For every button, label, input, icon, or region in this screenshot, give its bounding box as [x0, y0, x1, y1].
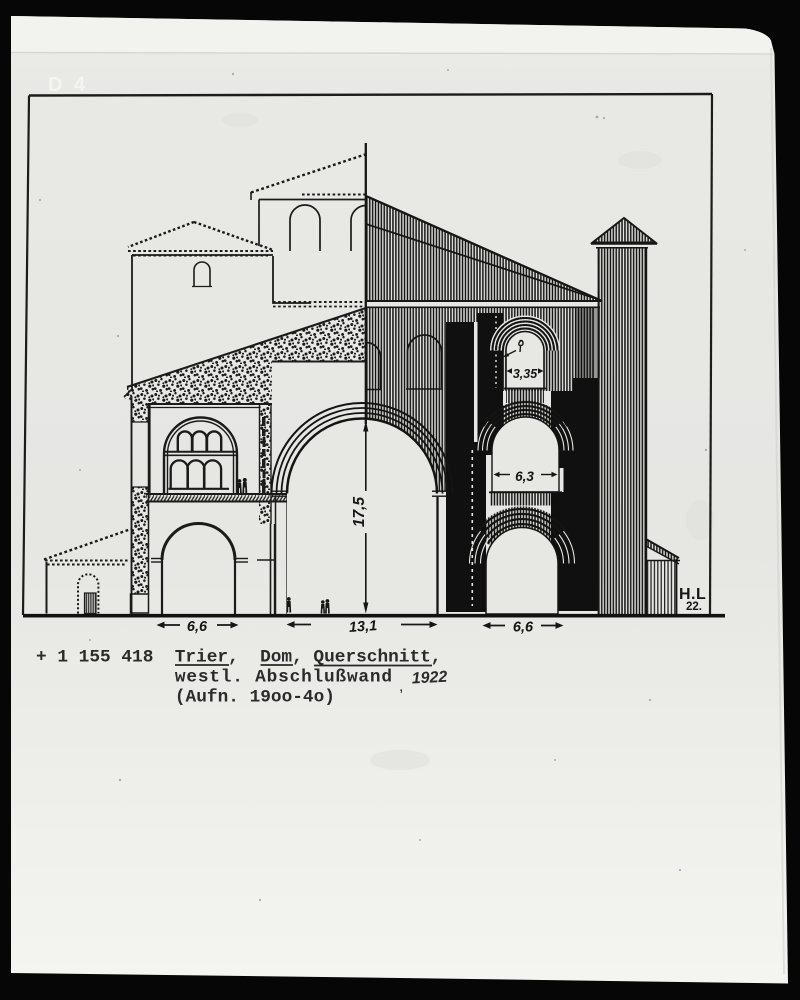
svg-text:6,6: 6,6	[513, 620, 534, 636]
svg-text:(Aufn. 19oo-4o): (Aufn. 19oo-4o)	[175, 688, 335, 708]
svg-text:6,6: 6,6	[187, 619, 208, 635]
svg-text:6,3: 6,3	[515, 469, 534, 484]
svg-text:22.: 22.	[686, 601, 702, 613]
svg-text:13,1: 13,1	[348, 618, 377, 636]
svg-text:D 4: D 4	[48, 74, 88, 96]
svg-text:17,5: 17,5	[351, 497, 368, 528]
svg-text:,: ,	[399, 678, 403, 695]
svg-text:1922: 1922	[411, 669, 448, 688]
svg-text:westl. Abschlußwand: westl. Abschlußwand	[175, 668, 393, 688]
svg-text:3,35: 3,35	[513, 367, 538, 381]
svg-text:+ 1 155 418 Trier, Dom, Quer: + 1 155 418 Trier, Dom, Querschnitt,	[36, 648, 441, 668]
